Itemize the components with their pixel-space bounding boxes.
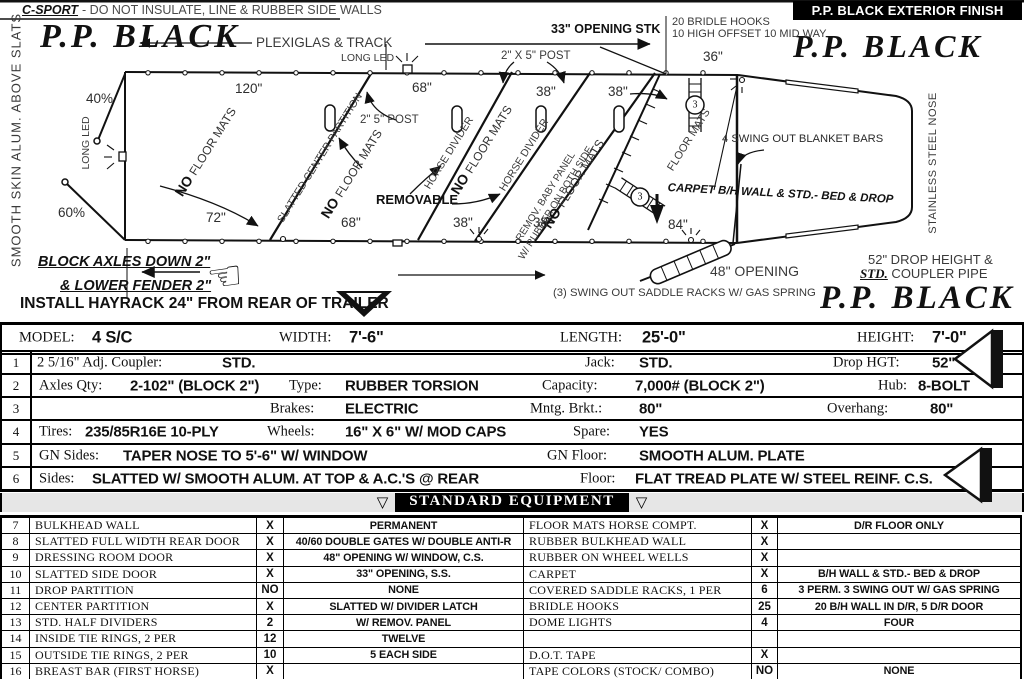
spec-header-row: MODEL: 4 S/C WIDTH: 7'-6" LENGTH: 25'-0"… — [0, 322, 1024, 355]
sides-label: Sides: — [39, 470, 74, 487]
equip-qty-2: NO — [752, 664, 778, 679]
equip-item: BREAST BAR (FIRST HORSE) — [30, 664, 257, 679]
equip-qty-2: 6 — [752, 583, 778, 599]
dim-68-top: 68" — [412, 80, 432, 95]
mntg-brkt-label: Mntg. Brkt.: — [530, 400, 602, 417]
dim-68-bot: 68" — [341, 215, 361, 230]
equip-qty: NO — [257, 583, 284, 599]
mntg-brkt-value: 80" — [639, 400, 662, 417]
equip-row-num: 10 — [2, 567, 30, 583]
post-note-mid: 2" 5" POST — [360, 114, 419, 126]
heading-note: - DO NOT INSULATE, LINE & RUBBER SIDE WA… — [82, 3, 382, 17]
equip-qty-2: 4 — [752, 615, 778, 631]
equip-qty-2: X — [752, 550, 778, 566]
wheels-value: 16" X 6" W/ MOD CAPS — [345, 424, 506, 441]
bridle-hooks-note-2: 10 HIGH OFFSET 10 MID WAY — [672, 28, 826, 40]
equip-row-num: 16 — [2, 664, 30, 679]
sides-value: SLATTED W/ SMOOTH ALUM. AT TOP & A.C.'S … — [92, 470, 479, 487]
rack-count-mid: 3 — [638, 192, 643, 203]
no-floor-mats-1: NOFLOOR MATS — [171, 104, 240, 200]
equip-qty: X — [257, 567, 284, 583]
equip-desc-2: 20 B/H WALL IN D/R, 5 D/R DOOR — [778, 599, 1020, 615]
block-axles-note-2: & LOWER FENDER 2" — [60, 278, 211, 294]
equip-qty: X — [257, 518, 284, 534]
removable-note: REMOVABLE — [376, 192, 458, 207]
wheels-label: Wheels: — [267, 424, 315, 441]
equip-item-2 — [524, 631, 752, 647]
saddle-racks-note: (3) SWING OUT SADDLE RACKS W/ GAS SPRING — [553, 287, 816, 299]
rear-gate-top-line — [98, 74, 125, 140]
equip-qty-2 — [752, 631, 778, 647]
dim-38a-bot: 38" — [453, 215, 473, 230]
equip-row-num: 11 — [2, 583, 30, 599]
nose-note: STAINLESS STEEL NOSE — [927, 92, 939, 233]
model-value: 4 S/C — [92, 328, 132, 347]
equip-qty-2: X — [752, 534, 778, 550]
brakes-value: ELECTRIC — [345, 400, 418, 417]
equip-item-2: FLOOR MATS HORSE COMPT. — [524, 518, 752, 534]
overhang-value: 80" — [930, 400, 953, 417]
capacity-label: Capacity: — [542, 377, 598, 394]
length-label: LENGTH: — [560, 329, 622, 346]
sheet-heading: C-SPORT- DO NOT INSULATE, LINE & RUBBER … — [22, 3, 382, 17]
hayrack-note: INSTALL HAYRACK 24" FROM REAR OF TRAILER — [20, 295, 389, 313]
equip-qty-2: X — [752, 567, 778, 583]
standard-equipment-band: ▽ STANDARD EQUIPMENT ▽ — [0, 493, 1024, 512]
equip-qty-2: X — [752, 518, 778, 534]
spec-row-3: 3 Brakes: ELECTRIC Mntg. Brkt.: 80" Over… — [0, 398, 1024, 421]
drop-hgt-value: 52" — [932, 354, 955, 371]
triangle-down-icon: ▽ — [377, 495, 389, 510]
opening-stk-note: 33" OPENING STK — [551, 22, 660, 36]
equip-desc: 5 EACH SIDE — [284, 648, 524, 664]
type-value: RUBBER TORSION — [345, 377, 479, 394]
equip-item-2: BRIDLE HOOKS — [524, 599, 752, 615]
spec-row-2: 2 Axles Qty: 2-102" (BLOCK 2") Type: RUB… — [0, 375, 1024, 398]
equip-desc-2: 3 PERM. 3 SWING OUT W/ GAS SPRING — [778, 583, 1020, 599]
long-led-top: LONG LED — [341, 52, 394, 64]
tires-value: 235/85R16E 10-PLY — [85, 424, 219, 441]
equip-item-2: CARPET — [524, 567, 752, 583]
equip-desc-2: FOUR — [778, 615, 1020, 631]
gate-pct-top: 40% — [86, 91, 113, 106]
plexiglas-track-top: PLEXIGLAS & TRACK — [256, 35, 392, 50]
block-axles-note-1: BLOCK AXLES DOWN 2" — [38, 254, 210, 270]
gn-floor-value: SMOOTH ALUM. PLATE — [639, 447, 805, 464]
equip-desc-2 — [778, 534, 1020, 550]
height-value: 7'-0" — [932, 328, 967, 347]
dim-38b-bot: 38" — [533, 215, 553, 230]
dim-84: 84" — [668, 217, 688, 232]
nose-window-bottom — [786, 225, 858, 238]
equip-desc-2 — [778, 648, 1020, 664]
gn-sides-value: TAPER NOSE TO 5'-6" W/ WINDOW — [123, 447, 367, 464]
equip-desc: 33" OPENING, S.S. — [284, 567, 524, 583]
equip-qty: X — [257, 550, 284, 566]
blanket-bars-note: 4 SWING OUT BLANKET BARS — [722, 133, 883, 145]
floor-mats-note: FLOOR MATS — [665, 107, 713, 173]
width-label: WIDTH: — [279, 329, 331, 346]
equip-item-2: COVERED SADDLE RACKS, 1 PER — [524, 583, 752, 599]
carpet-note: CARPET B/H WALL & STD.- BED & DROP — [667, 182, 893, 206]
brakes-label: Brakes: — [270, 400, 314, 417]
long-led-rear: LONG LED — [80, 116, 92, 169]
coupler-value: STD. — [222, 354, 255, 371]
spec-row-6: 6 Sides: SLATTED W/ SMOOTH ALUM. AT TOP … — [0, 468, 1024, 492]
dim-120: 120" — [235, 81, 262, 96]
dim-38a-top: 38" — [536, 84, 556, 99]
overhang-label: Overhang: — [827, 400, 888, 417]
triangle-down-icon: ▽ — [636, 495, 648, 510]
down-arrow-solid — [650, 205, 664, 224]
hub-label: Hub: — [878, 377, 907, 394]
equipment-grid: 7 BULKHEAD WALL X PERMANENT FLOOR MATS H… — [0, 515, 1022, 679]
equip-row-num: 13 — [2, 615, 30, 631]
dim-36: 36" — [703, 49, 723, 64]
tires-label: Tires: — [39, 424, 72, 441]
equip-row-num: 7 — [2, 518, 30, 534]
height-label: HEIGHT: — [857, 329, 914, 346]
equip-desc: NONE — [284, 583, 524, 599]
exterior-finish-banner: P.P. BLACK EXTERIOR FINISH — [793, 1, 1022, 20]
spare-label: Spare: — [573, 424, 610, 441]
paint-note-bottom-right: P.P. BLACK — [820, 280, 1015, 317]
standard-equipment-title: STANDARD EQUIPMENT — [395, 493, 628, 512]
equip-item: SLATTED FULL WIDTH REAR DOOR — [30, 534, 257, 550]
equip-desc: SLATTED W/ DIVIDER LATCH — [284, 599, 524, 615]
equip-item-2: TAPE COLORS (STOCK/ COMBO) — [524, 664, 752, 679]
jack-value: STD. — [639, 354, 672, 371]
model-label: MODEL: — [19, 329, 75, 346]
jack-label: Jack: — [585, 354, 615, 371]
pointing-hand-icon: ☜ — [204, 252, 246, 303]
blanket-bar-line — [733, 164, 741, 243]
trailer-spec-sheet: C-SPORT- DO NOT INSULATE, LINE & RUBBER … — [0, 0, 1024, 679]
equip-desc — [284, 664, 524, 679]
drop-height-note-2: STD. COUPLER PIPE — [860, 266, 988, 282]
coupler-label: 2 5/16" Adj. Coupler: — [37, 354, 162, 371]
spec-row-4: 4 Tires: 235/85R16E 10-PLY Wheels: 16" X… — [0, 421, 1024, 445]
equip-desc: 40/60 DOUBLE GATES W/ DOUBLE ANTI-R — [284, 534, 524, 550]
model-code: C-SPORT — [22, 3, 78, 17]
rack-count-top: 3 — [693, 100, 698, 111]
equip-item-2: D.O.T. TAPE — [524, 648, 752, 664]
left-wall-note: SMOOTH SKIN ALUM. ABOVE SLATS — [9, 13, 24, 267]
equip-desc: TWELVE — [284, 631, 524, 647]
hub-value: 8-BOLT — [918, 377, 970, 394]
equip-item: BULKHEAD WALL — [30, 518, 257, 534]
equip-desc-2: NONE — [778, 664, 1020, 679]
bridle-hooks-note-1: 20 BRIDLE HOOKS — [672, 16, 770, 28]
paint-note-top-left: P.P. BLACK — [40, 18, 240, 56]
opening-48-note: 48" OPENING — [710, 263, 799, 279]
equip-item: DROP PARTITION — [30, 583, 257, 599]
equip-item: CENTER PARTITION — [30, 599, 257, 615]
equip-row-num: 14 — [2, 631, 30, 647]
equip-qty: X — [257, 534, 284, 550]
width-value: 7'-6" — [349, 328, 384, 347]
equip-row-num: 15 — [2, 648, 30, 664]
equip-row-num: 12 — [2, 599, 30, 615]
equip-qty-2: 25 — [752, 599, 778, 615]
capacity-value: 7,000# (BLOCK 2") — [635, 377, 765, 394]
post-note-top: 2" X 5" POST — [501, 50, 571, 62]
gate-pct-bottom: 60% — [58, 205, 85, 220]
equip-desc: PERMANENT — [284, 518, 524, 534]
dim-72: 72" — [206, 210, 226, 225]
dim-38b-top: 38" — [608, 84, 628, 99]
type-label: Type: — [289, 377, 322, 394]
equip-desc-2: B/H WALL & STD.- BED & DROP — [778, 567, 1020, 583]
equip-row-num: 9 — [2, 550, 30, 566]
equip-qty: 10 — [257, 648, 284, 664]
spec-row-5: 5 GN Sides: TAPER NOSE TO 5'-6" W/ WINDO… — [0, 445, 1024, 468]
equip-item: DRESSING ROOM DOOR — [30, 550, 257, 566]
gn-floor-label: GN Floor: — [547, 447, 607, 464]
equip-desc: W/ REMOV. PANEL — [284, 615, 524, 631]
equip-desc-2 — [778, 631, 1020, 647]
equip-qty: X — [257, 599, 284, 615]
equip-item-2: DOME LIGHTS — [524, 615, 752, 631]
axles-value: 2-102" (BLOCK 2") — [130, 377, 259, 394]
equip-qty: X — [257, 664, 284, 679]
axles-label: Axles Qty: — [39, 377, 102, 394]
equip-desc-2: D/R FLOOR ONLY — [778, 518, 1020, 534]
equip-qty: 12 — [257, 631, 284, 647]
nose-window-top — [786, 80, 858, 93]
equip-qty: 2 — [257, 615, 284, 631]
length-value: 25'-0" — [642, 328, 686, 347]
gn-sides-label: GN Sides: — [39, 447, 99, 464]
floor-value: FLAT TREAD PLATE W/ STEEL REINF. C.S. — [635, 470, 933, 487]
equip-item: OUTSIDE TIE RINGS, 2 PER — [30, 648, 257, 664]
equip-item: STD. HALF DIVIDERS — [30, 615, 257, 631]
equip-item: INSIDE TIE RINGS, 2 PER — [30, 631, 257, 647]
drop-height-note-1: 52" DROP HEIGHT & — [868, 252, 993, 267]
spare-value: YES — [639, 424, 668, 441]
equip-qty-2: X — [752, 648, 778, 664]
equip-row-num: 8 — [2, 534, 30, 550]
equip-item-2: RUBBER BULKHEAD WALL — [524, 534, 752, 550]
drop-hgt-label: Drop HGT: — [833, 354, 900, 371]
floor-label: Floor: — [580, 470, 615, 487]
equip-item-2: RUBBER ON WHEEL WELLS — [524, 550, 752, 566]
equip-item: SLATTED SIDE DOOR — [30, 567, 257, 583]
equip-desc: 48" OPENING W/ WINDOW, C.S. — [284, 550, 524, 566]
spec-row-1: 1 2 5/16" Adj. Coupler: STD. Jack: STD. … — [0, 352, 1024, 375]
equip-desc-2 — [778, 550, 1020, 566]
